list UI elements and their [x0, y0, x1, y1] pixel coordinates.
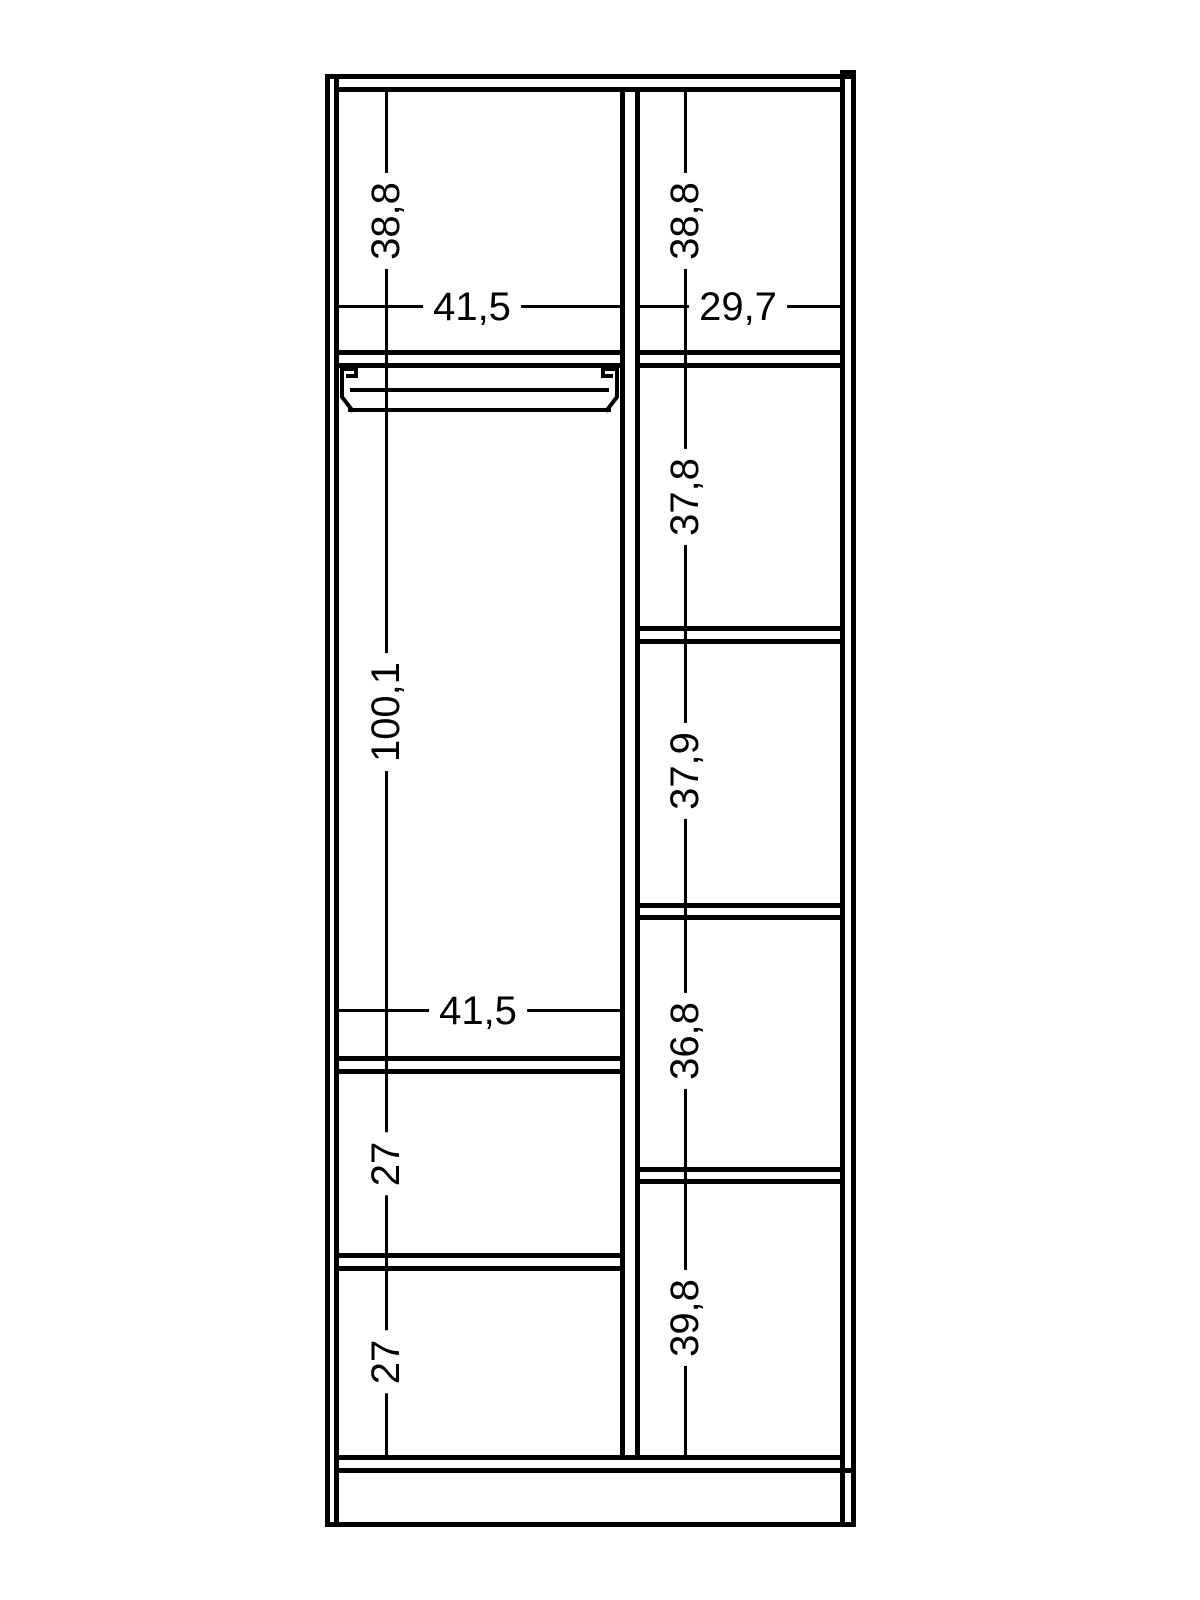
left-shelf2-bottom-line [339, 1069, 620, 1074]
right-shelf1-bottom-line [640, 363, 840, 368]
dim-label-left-rod-section: 100,1 [365, 653, 407, 771]
dim-label-left-top-width: 41,5 [423, 286, 521, 328]
bottom-deck-lower-line [334, 1468, 851, 1473]
dim-label-right-section2: 37,8 [664, 449, 706, 545]
wardrobe-dimension-drawing: 38,8 41,5 100,1 41,5 27 27 38,8 29,7 37,… [0, 0, 1200, 1600]
right-shelf3-top-line [640, 903, 840, 908]
bottom-deck-upper-line [339, 1455, 840, 1460]
bottom-outer-line [325, 1522, 856, 1527]
left-shelf1-top-line [339, 350, 620, 355]
left-wall-outer-line [325, 74, 330, 1527]
right-shelf3-bottom-line [640, 915, 840, 920]
dim-label-right-section4: 36,8 [664, 993, 706, 1089]
right-shelf2-top-line [640, 626, 840, 631]
center-divider-left-line [620, 92, 625, 1455]
top-panel-inner-line [339, 87, 840, 92]
dim-label-left-drawer2-height: 27 [365, 1331, 407, 1394]
right-wall-inner-line [840, 70, 845, 1527]
top-panel-outer-line [325, 74, 856, 79]
right-wall-top-cap [840, 70, 856, 75]
left-vertical-dimension-line [385, 92, 388, 1455]
dim-label-left-top-height: 38,8 [365, 173, 407, 269]
dim-label-left-mid-width: 41,5 [429, 990, 527, 1032]
right-wall-outer-line [851, 70, 856, 1527]
left-shelf2-top-line [339, 1056, 620, 1061]
dim-label-left-drawer1-height: 27 [365, 1133, 407, 1196]
left-wall-inner-line [334, 74, 339, 1527]
center-divider-right-line [635, 92, 640, 1455]
right-shelf1-top-line [640, 350, 840, 355]
dim-label-right-top-width: 29,7 [689, 286, 787, 328]
dim-label-right-section3: 37,9 [664, 723, 706, 819]
left-shelf3-bottom-line [339, 1266, 620, 1271]
right-shelf4-bottom-line [640, 1179, 840, 1184]
left-shelf3-top-line [339, 1253, 620, 1258]
right-shelf4-top-line [640, 1167, 840, 1172]
hanging-rod [339, 366, 620, 413]
right-shelf2-bottom-line [640, 639, 840, 644]
dim-label-right-section5: 39,8 [664, 1270, 706, 1366]
dim-label-right-top-height: 38,8 [664, 173, 706, 269]
